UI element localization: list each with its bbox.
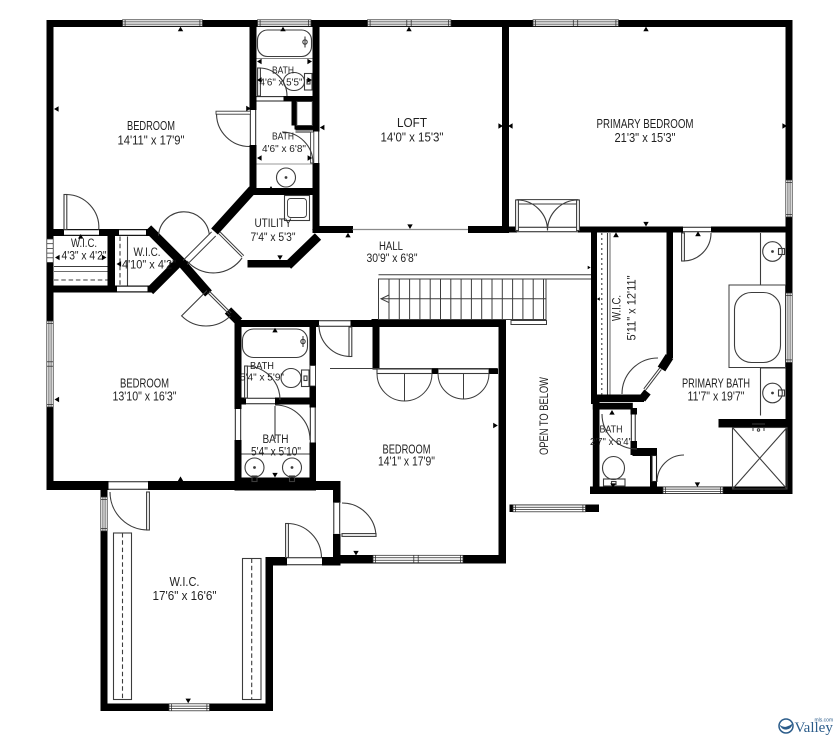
svg-text:W.I.C.: W.I.C. bbox=[612, 295, 624, 321]
svg-text:13'10" x 16'3": 13'10" x 16'3" bbox=[113, 390, 177, 404]
svg-text:11'7" x 19'7": 11'7" x 19'7" bbox=[688, 390, 745, 404]
svg-text:HALL: HALL bbox=[379, 241, 403, 253]
svg-text:BATH: BATH bbox=[600, 424, 623, 436]
svg-text:14'11" x 17'9": 14'11" x 17'9" bbox=[118, 134, 185, 148]
svg-text:2'7" x 6'4": 2'7" x 6'4" bbox=[590, 436, 632, 448]
svg-text:BEDROOM: BEDROOM bbox=[120, 377, 169, 391]
svg-text:5'4" x 5'9": 5'4" x 5'9" bbox=[240, 372, 284, 384]
svg-text:LOFT: LOFT bbox=[397, 116, 427, 130]
svg-text:14'1" x 17'9": 14'1" x 17'9" bbox=[378, 455, 435, 469]
svg-text:21'3" x 15'3": 21'3" x 15'3" bbox=[615, 131, 676, 145]
svg-text:W.I.C.: W.I.C. bbox=[170, 575, 200, 589]
svg-text:14'0" x 15'3": 14'0" x 15'3" bbox=[381, 131, 444, 145]
svg-text:W.I.C.: W.I.C. bbox=[134, 247, 161, 259]
svg-text:17'6" x 16'6": 17'6" x 16'6" bbox=[153, 589, 217, 603]
svg-text:PRIMARY BEDROOM: PRIMARY BEDROOM bbox=[597, 117, 694, 131]
svg-text:OPEN TO BELOW: OPEN TO BELOW bbox=[539, 377, 551, 455]
svg-text:4'10" x 4'2": 4'10" x 4'2" bbox=[122, 260, 176, 272]
svg-text:5'4" x 5'10": 5'4" x 5'10" bbox=[251, 447, 301, 459]
svg-text:BATH: BATH bbox=[272, 131, 294, 143]
svg-text:mls.com: mls.com bbox=[815, 718, 834, 724]
svg-text:UTILITY: UTILITY bbox=[255, 218, 292, 230]
svg-text:7'4" x 5'3": 7'4" x 5'3" bbox=[251, 232, 296, 244]
svg-text:4'6" x 6'8": 4'6" x 6'8" bbox=[262, 143, 306, 155]
svg-text:BATH: BATH bbox=[250, 360, 274, 372]
svg-text:4'3" x 4'2": 4'3" x 4'2" bbox=[62, 251, 107, 263]
svg-text:BEDROOM: BEDROOM bbox=[127, 119, 175, 133]
svg-text:30'9" x 6'8": 30'9" x 6'8" bbox=[367, 253, 418, 265]
svg-text:PRIMARY BATH: PRIMARY BATH bbox=[682, 377, 750, 391]
svg-text:BATH: BATH bbox=[272, 65, 294, 77]
svg-text:5'11" x 12'11": 5'11" x 12'11" bbox=[627, 276, 639, 341]
svg-text:BATH: BATH bbox=[263, 434, 289, 446]
svg-text:4'6" x 5'5": 4'6" x 5'5" bbox=[260, 77, 303, 89]
svg-text:W.I.C.: W.I.C. bbox=[71, 238, 97, 250]
